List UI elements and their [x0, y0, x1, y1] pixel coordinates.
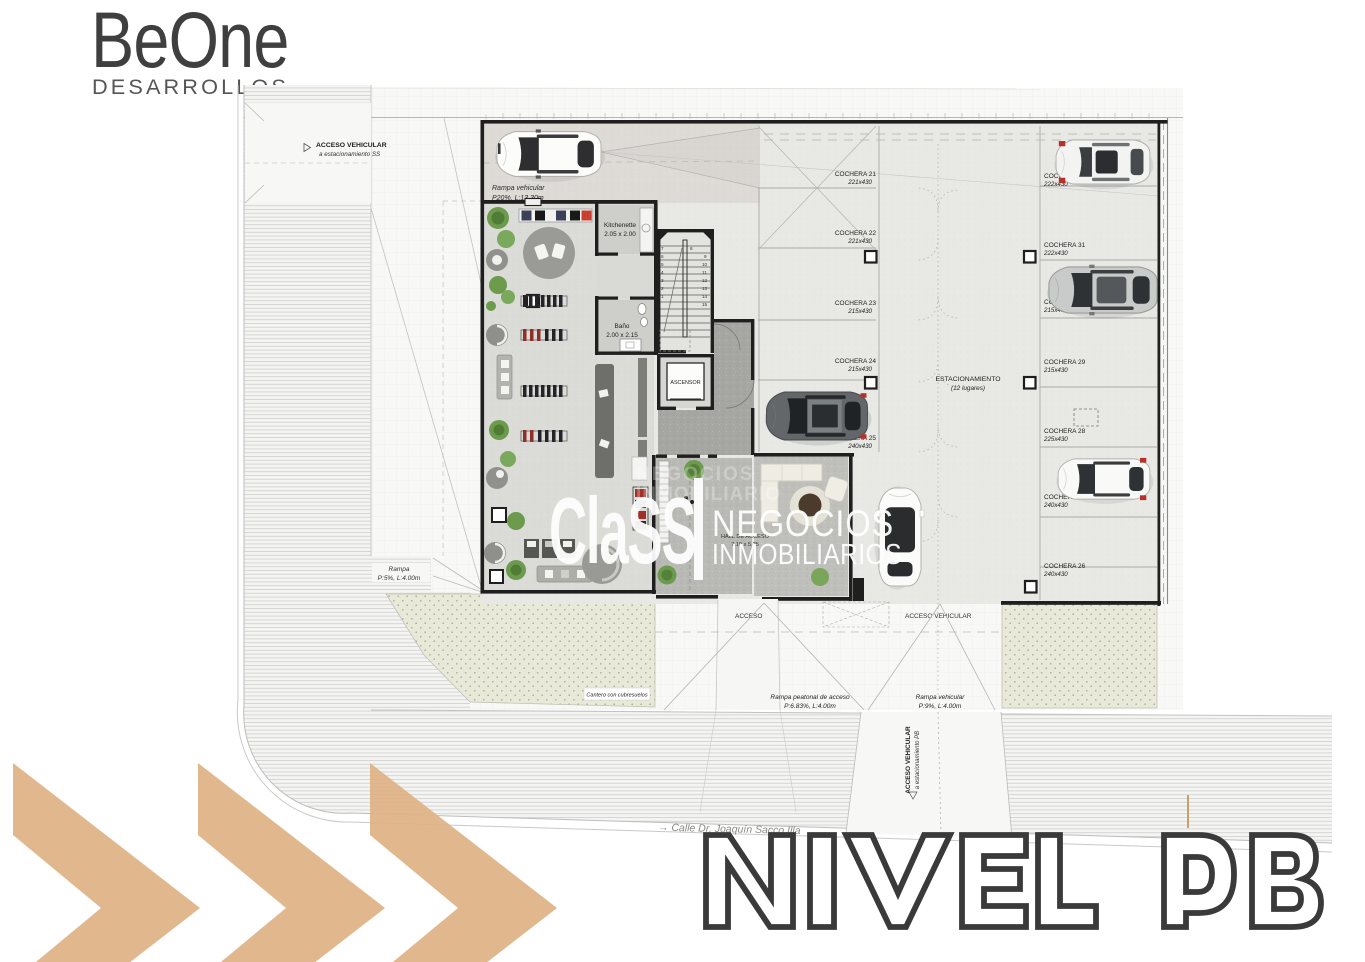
svg-text:P:9%, L:4.00m: P:9%, L:4.00m [919, 703, 962, 710]
svg-text:ACCESO VEHICULAR: ACCESO VEHICULAR [905, 726, 912, 794]
svg-text:4: 4 [661, 270, 664, 275]
svg-text:Rampa: Rampa [389, 566, 410, 573]
svg-text:COCHERA 26: COCHERA 26 [1044, 563, 1086, 570]
svg-text:COCHERA 28: COCHERA 28 [1044, 428, 1086, 435]
svg-text:COCHERA 24: COCHERA 24 [835, 358, 877, 365]
svg-text:ASCENSOR: ASCENSOR [670, 380, 700, 386]
svg-text:INMOBILIARIOS: INMOBILIARIOS [712, 539, 902, 571]
svg-text:13: 13 [702, 286, 708, 291]
svg-text:7: 7 [661, 246, 664, 251]
svg-text:NEGOCIOS: NEGOCIOS [712, 503, 894, 544]
svg-text:221x430: 221x430 [847, 179, 872, 186]
svg-text:3: 3 [661, 278, 664, 283]
svg-text:2.05 x 2.00: 2.05 x 2.00 [604, 231, 636, 238]
svg-text:P:6.83%, L:4.00m: P:6.83%, L:4.00m [784, 703, 836, 710]
svg-text:5: 5 [661, 262, 664, 267]
svg-text:240x430: 240x430 [847, 443, 872, 450]
svg-text:a estacionamiento PB: a estacionamiento PB [915, 731, 921, 789]
svg-text:ESTACIONAMIENTO: ESTACIONAMIENTO [935, 376, 1000, 383]
svg-text:COCHERA 21: COCHERA 21 [835, 171, 877, 178]
svg-text:15: 15 [702, 302, 708, 307]
svg-text:ClaSS: ClaSS [549, 479, 696, 584]
svg-text:2: 2 [661, 286, 664, 291]
svg-text:12: 12 [702, 278, 708, 283]
svg-text:225x430: 225x430 [1043, 436, 1068, 443]
svg-text:COCHERA 31: COCHERA 31 [1044, 242, 1086, 249]
svg-text:14: 14 [702, 294, 708, 299]
svg-text:(12 lugares): (12 lugares) [951, 385, 985, 392]
svg-text:1: 1 [661, 294, 664, 299]
svg-text:2.00 x 2.15: 2.00 x 2.15 [606, 332, 638, 339]
svg-text:Baño: Baño [615, 323, 630, 330]
svg-text:Rampa peatonal de acceso: Rampa peatonal de acceso [770, 694, 850, 701]
svg-text:6: 6 [661, 254, 664, 259]
svg-text:221x430: 221x430 [847, 238, 872, 245]
svg-text:COCHERA 22: COCHERA 22 [835, 230, 877, 237]
svg-text:COCHERA 23: COCHERA 23 [835, 300, 877, 307]
svg-text:215x430: 215x430 [847, 366, 872, 373]
svg-text:Cantero con cubresuelos: Cantero con cubresuelos [586, 693, 647, 699]
svg-text:P:5%, L:4.00m: P:5%, L:4.00m [378, 575, 421, 582]
svg-text:240x430: 240x430 [1043, 571, 1068, 578]
svg-text:a estacionamiento SS: a estacionamiento SS [319, 151, 381, 158]
svg-text:BeOne: BeOne [91, 0, 289, 84]
svg-text:COCHERA 29: COCHERA 29 [1044, 359, 1086, 366]
svg-text:Kitchenette: Kitchenette [604, 222, 636, 229]
svg-text:215x430: 215x430 [1043, 367, 1068, 374]
svg-text:8: 8 [690, 246, 693, 251]
svg-text:11: 11 [702, 270, 707, 275]
svg-text:222x430: 222x430 [1043, 250, 1068, 257]
svg-text:Rampa vehicular: Rampa vehicular [916, 694, 966, 701]
svg-text:215x430: 215x430 [847, 308, 872, 315]
svg-text:9: 9 [704, 254, 707, 259]
svg-text:ACCESO VEHICULAR: ACCESO VEHICULAR [316, 142, 387, 149]
svg-text:10: 10 [702, 262, 708, 267]
svg-text:ACCESO VEHICULAR: ACCESO VEHICULAR [905, 613, 972, 620]
svg-text:240x430: 240x430 [1043, 502, 1068, 509]
